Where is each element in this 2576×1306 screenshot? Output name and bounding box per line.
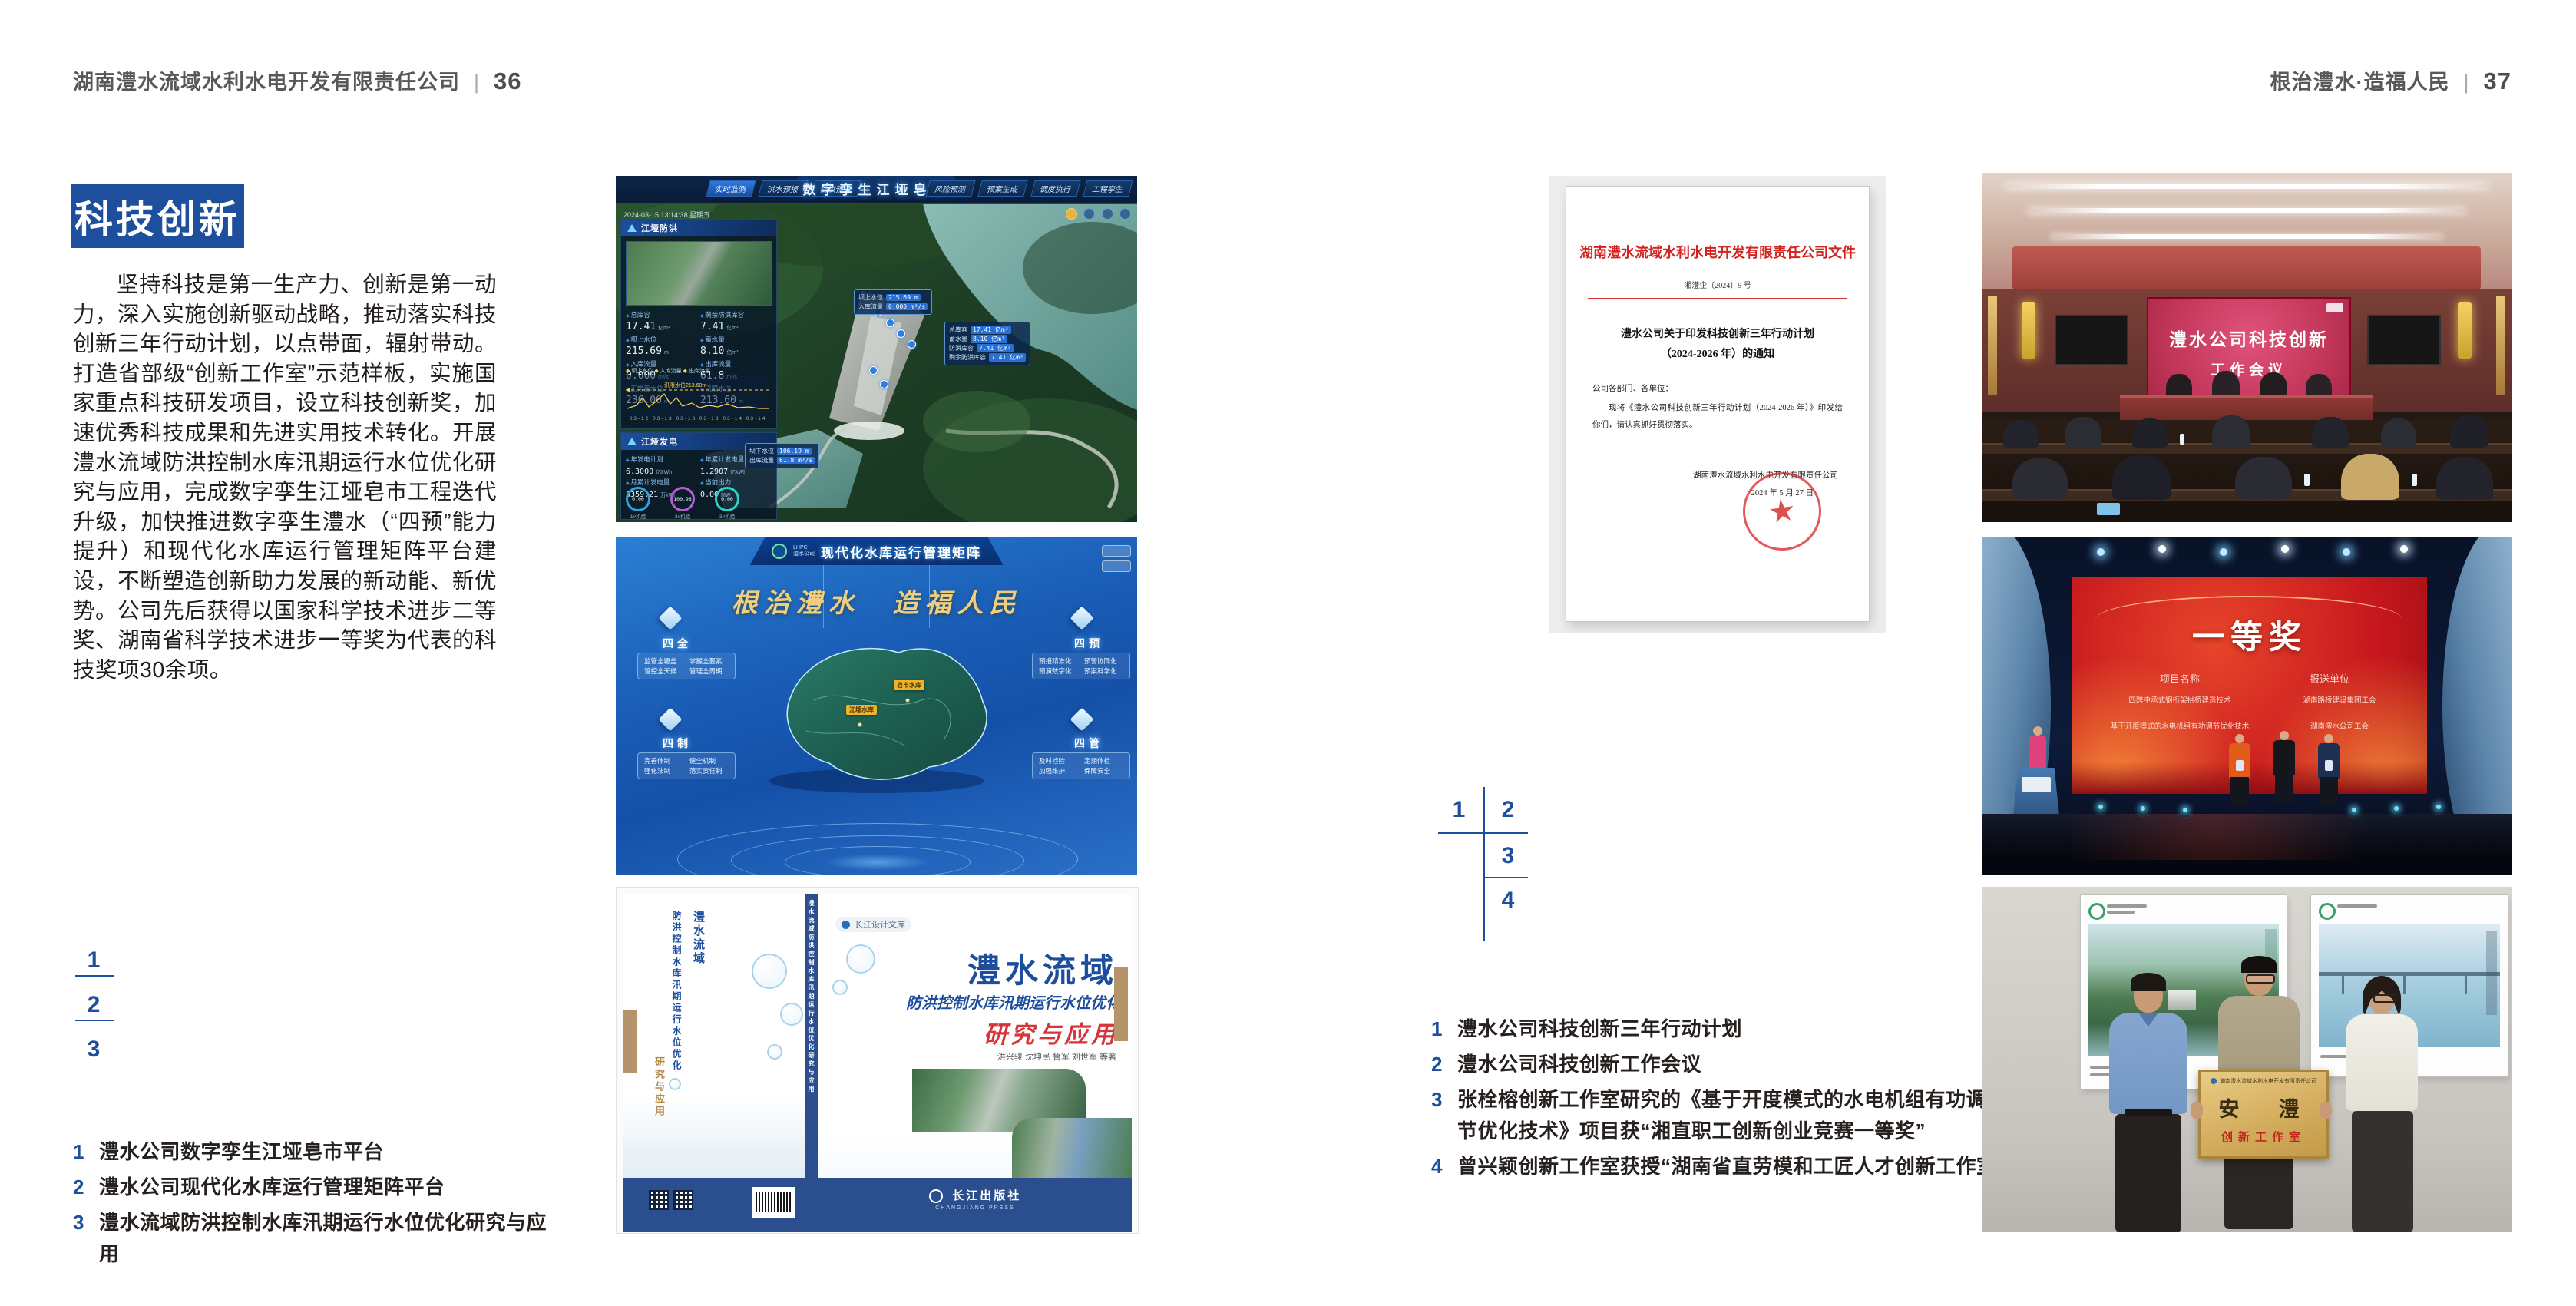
trophy	[2236, 760, 2244, 771]
spine-title: 澧水流域防洪控制水库汛期运行水位优化研究与应用	[807, 900, 815, 1153]
body-paragraph: 坚持科技是第一生产力、创新是第一动力，深入实施创新驱动战略，推动落实科技创新三年…	[73, 270, 497, 685]
unit-gauges: 0.001#机组 100.982#机组 0.003#机组	[626, 487, 739, 520]
attendee-silhouette	[2212, 415, 2250, 448]
tooltip-value: 0.000 m³/s	[886, 303, 928, 310]
publisher-name: 长江出版社	[952, 1190, 1021, 1202]
bubble-decor	[752, 954, 787, 989]
awardee-body	[2273, 740, 2295, 775]
quad-panel-siguan: 及时检险定期体检 加强维护保障安全	[1032, 752, 1130, 779]
tooltip-row: 总库容17.41 亿m³	[949, 326, 1026, 334]
message-icon[interactable]	[1083, 208, 1095, 220]
stat-cell: 坝上水位215.69m	[626, 335, 697, 358]
header-separator: |	[2450, 71, 2484, 94]
tooltip-label: 入库流量	[858, 303, 883, 311]
awardee-navy	[2318, 743, 2340, 814]
tab-flood-forecast[interactable]: 洪水预报	[759, 180, 809, 197]
panelist-silhouette	[2260, 372, 2287, 397]
poster-bridge-pier	[2465, 976, 2467, 994]
page-number-right: 37	[2484, 68, 2512, 94]
caption-text: 澧水公司现代化水库运行管理矩阵平台	[99, 1172, 445, 1203]
side-tv-screen	[2055, 315, 2128, 365]
quad-item: 完善体制	[644, 756, 683, 765]
publisher-en: CHANGJIANG PRESS	[818, 1205, 1132, 1211]
spotlight	[2343, 548, 2350, 556]
map-label-jiangya[interactable]: 江垭水库	[846, 705, 877, 715]
figure-marker-3: 3	[71, 1037, 117, 1063]
water-level-chart: 汛限水位213.60m	[626, 375, 770, 415]
left-captions: 1 澧水公司数字孪生江垭皂市平台 2 澧水公司现代化水库运行管理矩阵平台 3 澧…	[73, 1136, 564, 1274]
bubble-decor	[780, 1003, 803, 1026]
stage-light-fixture	[2392, 805, 2400, 815]
plaque-subtitle: 创新工作室	[2201, 1129, 2326, 1145]
poster-logo-icon	[2088, 903, 2105, 920]
spotlight	[2158, 545, 2166, 553]
figure-official-document: 湖南澧水流域水利水电开发有限责任公司文件 湘澧企〔2024〕9 号 澧水公司关于…	[1549, 176, 1886, 633]
gauge-label: 1#机组	[626, 512, 650, 520]
marker-divider	[75, 1020, 114, 1021]
tooltip-row: 蓄水量8.10 亿m³	[949, 335, 1026, 343]
logo-sub: 澧水公司	[793, 551, 815, 557]
quad-item: 管控全天候	[644, 666, 683, 676]
toolbar-icons	[1063, 208, 1131, 223]
quad-item: 掌握全要素	[689, 656, 729, 666]
document-title-line2: （2024-2026 年）的通知	[1566, 346, 1869, 361]
tooltip-value: 106.19 m	[777, 448, 812, 455]
water-bottle	[2180, 434, 2184, 445]
gauge-value: 100.98	[670, 487, 695, 511]
publisher-logo-icon	[929, 1189, 943, 1203]
quad-title-siquan: 四全	[646, 636, 708, 651]
company-name: 湖南澧水流域水利水电开发有限责任公司	[73, 71, 460, 94]
marker-hline	[1438, 832, 1528, 834]
document-page: 湖南澧水流域水利水电开发有限责任公司文件 湘澧企〔2024〕9 号 澧水公司关于…	[1566, 187, 1869, 621]
right-tab-group: 风险预测 预案生成 调度执行 工程孪生	[926, 180, 1133, 197]
quad-title-sizhi: 四制	[646, 736, 708, 751]
attendee-silhouette	[2450, 415, 2488, 448]
hand	[2191, 1102, 2203, 1119]
caption-text: 张栓榕创新工作室研究的《基于开度模式的水电机组有功调节优化技术》项目获“湘直职工…	[1457, 1084, 1995, 1147]
page-slogan: 根治澧水·造福人民	[2270, 71, 2450, 94]
stage-light-fixture	[2350, 806, 2358, 817]
side-tv-screen	[2367, 315, 2441, 365]
barcode	[756, 1192, 791, 1212]
panel-logo-icon	[627, 224, 637, 232]
chart-x-axis: 03-12 03-13 03-13 03-13 03-14 03-14	[626, 416, 770, 422]
award-unit-1: 湖南路桥建设集团工会	[2278, 694, 2401, 705]
spotlight	[2220, 548, 2227, 556]
company-logo-icon	[772, 544, 787, 559]
stat-cell: 年发电计划6.3000亿kWh	[626, 455, 697, 478]
quad-panel-siquan: 监管全覆盖掌握全要素 管控全天候管理全周期	[637, 653, 736, 679]
attendee-silhouette-yellow	[2341, 454, 2399, 500]
stat-label: 总库容	[626, 310, 697, 319]
marker-hline	[1483, 877, 1528, 878]
back-title-1: 澧水流域	[690, 911, 706, 1141]
person-white-tee	[2346, 1014, 2418, 1111]
person-right	[2336, 980, 2426, 1232]
awardee-head	[2280, 731, 2289, 740]
series-name: 长江设计文库	[855, 918, 905, 931]
awardee-head	[2324, 734, 2333, 743]
stat-value: 6.3000	[626, 468, 653, 476]
panelist-silhouette	[2306, 374, 2332, 397]
ring-glow	[823, 854, 931, 871]
right-captions: 1 澧水公司科技创新三年行动计划 2 澧水公司科技创新工作会议 3 张栓榕创新工…	[1431, 1013, 2015, 1186]
caption-text: 澧水公司科技创新三年行动计划	[1457, 1013, 1742, 1045]
dam-marker-icon[interactable]	[886, 319, 894, 327]
award-project-2: 基于开度模式的水电机组有功调节优化技术	[2088, 720, 2272, 731]
tooltip-value: 7.41 亿m³	[977, 344, 1014, 352]
gauge-unit-2: 100.982#机组	[670, 487, 695, 520]
stat-cell: 总库容17.41亿m³	[626, 310, 697, 333]
quad-item: 预案科学化	[1084, 666, 1123, 676]
slogan-calligraphy: 根治澧水 造福人民	[616, 582, 1137, 620]
award-col2-header: 报送单位	[2268, 671, 2391, 686]
quad-item: 预报精准化	[1039, 656, 1078, 666]
panelist-silhouette	[2212, 371, 2240, 397]
tooltip-value: 17.41 亿m³	[971, 326, 1011, 334]
stat-unit: 亿m³	[658, 326, 670, 331]
tooltip-row: 剩余防洪库容7.41 亿m³	[949, 353, 1026, 362]
watershed-map	[745, 623, 1009, 797]
tooltip-row: 坝上水位215.69 m	[858, 293, 928, 302]
awardee-legs	[2320, 777, 2338, 805]
figure-award-photo: 一等奖 项目名称 报送单位 四跨中承式钢桁架拱桥建造技术 湖南路桥建设集团工会 …	[1982, 537, 2512, 875]
series-logo-icon	[842, 921, 850, 929]
stage-light-fixture	[2097, 803, 2105, 814]
figure-marker-2: 2	[1491, 797, 1525, 823]
tab-plan-generation[interactable]: 预案生成	[977, 180, 1027, 197]
figure-marker-3: 3	[1491, 843, 1525, 869]
figure-plaque-photo: 湖南澧水流域水利水电开发有限责任公司 安 澧 创新工作室	[1982, 887, 2512, 1232]
legend-item: 入库流量	[660, 369, 682, 374]
poster-text-bar	[2337, 904, 2377, 908]
stat-unit: 亿kWh	[656, 470, 672, 475]
quad-icon	[658, 707, 682, 731]
figure-marker-1: 1	[1442, 797, 1476, 823]
attendee-silhouette	[2012, 458, 2068, 500]
screen-swoosh	[2095, 596, 2402, 643]
attendee-silhouette	[2235, 457, 2292, 500]
tab-dispatch-execute[interactable]: 调度执行	[1030, 180, 1080, 197]
quad-item: 保障安全	[1084, 766, 1123, 775]
host-body	[2029, 736, 2046, 771]
tooltip-label: 坝下水位	[749, 447, 774, 455]
tissue-box	[2097, 503, 2120, 515]
attendee-silhouette	[2132, 418, 2168, 448]
left-page-header: 湖南澧水流域水利水电开发有限责任公司|36	[73, 65, 522, 95]
person-polo-shirt	[2109, 1013, 2187, 1114]
tab-risk-forecast[interactable]: 风险预测	[925, 180, 975, 197]
caption-text: 澧水公司数字孪生江垭皂市平台	[99, 1136, 384, 1168]
plaque-org: 湖南澧水流域水利水电开发有限责任公司	[2220, 1077, 2316, 1085]
marker-divider	[75, 975, 114, 977]
attendee-silhouette	[2065, 417, 2101, 448]
stat-label: 当前出力	[700, 478, 772, 487]
quad-title-siyu: 四预	[1058, 636, 1119, 651]
tooltip-label: 蓄水量	[949, 335, 967, 343]
legend-item: 坝上水位	[631, 369, 653, 374]
section-title-badge: 科技创新	[71, 184, 244, 248]
stat-label: 年发电计划	[626, 455, 697, 464]
quad-item: 健全机制	[689, 756, 729, 765]
caption-number: 1	[1431, 1013, 1457, 1045]
dam-thumbnail	[626, 241, 772, 306]
dam-marker-icon[interactable]	[880, 380, 888, 388]
back-title-3: 研究与应用	[652, 1056, 666, 1156]
water-bottle	[2412, 474, 2417, 486]
awardee-legs	[2275, 774, 2293, 802]
stat-cell: 蓄水量8.10亿m³	[700, 335, 772, 358]
figure-marker-2: 2	[71, 992, 117, 1018]
stat-label: 剩余防洪库容	[700, 310, 772, 319]
quad-item: 预警协同化	[1084, 656, 1123, 666]
person-hair	[2241, 956, 2277, 973]
attendee-silhouette	[2003, 420, 2039, 448]
awardee-head	[2235, 734, 2244, 743]
attendee-silhouette	[2112, 455, 2171, 500]
front-title-2: 防洪控制水库汛期运行水位优化	[826, 990, 1121, 1013]
plaque-name: 安 澧	[2201, 1093, 2326, 1122]
quad-item: 强化法制	[644, 766, 683, 775]
person-left	[2101, 977, 2194, 1232]
bubble-decor	[669, 1078, 681, 1090]
quad-panel-siyu: 预报精准化预警协同化 预演数字化预案科学化	[1032, 653, 1130, 679]
barcode-box	[752, 1187, 795, 1218]
document-body: 现将《澧水公司科技创新三年行动计划（2024-2026 年）》印发给你们，请认真…	[1592, 400, 1843, 434]
front-bottom-band: 长江出版社 CHANGJIANG PRESS	[818, 1178, 1132, 1232]
caption-item: 1 澧水公司数字孪生江垭皂市平台	[73, 1136, 564, 1168]
stat-unit: 亿m³	[726, 350, 738, 355]
dam-marker-icon[interactable]	[908, 340, 916, 349]
quad-panel-sizhi: 完善体制健全机制 强化法制落实责任制	[637, 752, 736, 779]
poster-bridge	[2319, 972, 2500, 976]
figure-matrix-platform: LHPC澧水公司 现代化水库运行管理矩阵 根治澧水 造福人民 江垭水库 皂市水库…	[616, 537, 1137, 875]
bubble-decor	[767, 1044, 782, 1060]
corner-light-column	[2496, 296, 2505, 395]
tooltip-reservoir: 总库容17.41 亿m³ 蓄水量8.10 亿m³ 防洪库容7.41 亿m³ 剩余…	[944, 322, 1030, 365]
stat-cell: 剩余防洪库容7.41亿m³	[700, 310, 772, 333]
tooltip-row: 出库流量61.8 m³/s	[749, 456, 815, 465]
stat-value: 17.41	[626, 321, 656, 332]
awardee-legs	[2230, 777, 2249, 805]
tooltip-label: 剩余防洪库容	[949, 353, 986, 362]
attendee-silhouette	[2312, 417, 2349, 448]
caption-number: 3	[1431, 1084, 1457, 1116]
marker-vline	[1483, 787, 1485, 941]
logo-abbr: LHPC	[793, 545, 808, 551]
awardee-orange	[2229, 743, 2250, 814]
stage-light-fixture	[2435, 803, 2442, 814]
series-badge: 长江设计文库	[835, 917, 911, 932]
document-red-header: 湖南澧水流域水利水电开发有限责任公司文件	[1566, 242, 1869, 262]
authors: 洪兴骏 沈坤民 鲁军 刘世军 等著	[865, 1050, 1116, 1063]
caption-number: 2	[73, 1172, 99, 1203]
corner-light-column	[1988, 296, 1997, 395]
tooltip-label: 总库容	[949, 326, 967, 334]
wall-sconce-lamp	[2458, 302, 2472, 359]
right-page-header: 根治澧水·造福人民|37	[2270, 65, 2512, 95]
matrix-title: 现代化水库运行管理矩阵	[821, 542, 981, 561]
gauge-label: 2#机组	[670, 512, 695, 520]
gauge-value: 0.00	[715, 487, 739, 511]
seal-star-icon: ★	[1766, 492, 1798, 531]
poster-text-bar	[2107, 904, 2147, 908]
document-number: 湘澧企〔2024〕9 号	[1566, 279, 1869, 290]
back-accent-block	[623, 1010, 637, 1073]
ceiling-red-band	[2012, 246, 2481, 289]
tooltip-label: 防洪库容	[949, 344, 974, 352]
stat-unit: 亿kWh	[730, 470, 746, 475]
settings-icon[interactable]	[1119, 208, 1131, 220]
qr-code	[649, 1190, 669, 1210]
dam-marker-icon[interactable]	[869, 366, 878, 375]
figure-digital-twin-platform: 防洪兴利调度 实时监测 洪水预报 防洪预演 数字孪生江垭皂市 风险预测 预案生成…	[616, 176, 1137, 522]
figure-marker-1: 1	[71, 947, 117, 974]
caption-number: 1	[73, 1136, 99, 1168]
page-number-left: 36	[494, 68, 521, 94]
glasses-icon	[2246, 974, 2275, 984]
logo-text: LHPC澧水公司	[793, 545, 815, 557]
caption-number: 3	[73, 1207, 99, 1238]
panel-chip[interactable]	[1102, 560, 1131, 572]
document-title-line1: 澧水公司关于印发科技创新三年行动计划	[1566, 326, 1869, 341]
tooltip-row: 坝下水位106.19 m	[749, 447, 815, 455]
tooltip-value: 61.8 m³/s	[777, 457, 815, 464]
gauge-unit-1: 0.001#机组	[626, 487, 650, 520]
quad-item: 管理全周期	[689, 666, 729, 676]
caption-item: 2 澧水公司现代化水库运行管理矩阵平台	[73, 1172, 564, 1203]
legend-item: 出库流量	[689, 369, 710, 374]
screen-logo	[2326, 303, 2343, 312]
poster-text-bar	[2107, 911, 2135, 914]
map-label-zaoshi[interactable]: 皂市水库	[894, 680, 924, 690]
floor-reflection	[2072, 814, 2427, 860]
back-title-2: 防洪控制水库汛期运行水位优化	[670, 911, 683, 1156]
award-unit-2: 湖南澧水公司工会	[2278, 720, 2401, 731]
tooltip-label: 出库流量	[749, 456, 774, 465]
figure-meeting-photo: 澧水公司科技创新 工作会议	[1982, 173, 2512, 522]
panelist-silhouette	[2166, 374, 2192, 397]
screen-title-line1: 澧水公司科技创新	[2148, 325, 2349, 351]
qr-code	[673, 1190, 693, 1210]
front-accent-block	[1114, 967, 1128, 1041]
light-strip	[2005, 184, 2488, 189]
document-salutation: 公司各部门、各单位：	[1592, 382, 1843, 394]
figure-book-cover: 澧水流域 防洪控制水库汛期运行水位优化 研究与应用 澧水流域防洪控制水库汛期运行…	[616, 887, 1139, 1234]
tab-realtime-monitor[interactable]: 实时监测	[706, 180, 756, 197]
attendee-silhouette	[2381, 418, 2416, 448]
water-bottle	[2304, 474, 2310, 486]
tooltip-upstream: 坝上水位215.69 m 入库流量0.000 m³/s	[854, 289, 932, 315]
awardee-suit	[2273, 740, 2295, 814]
caption-item: 3 张栓榕创新工作室研究的《基于开度模式的水电机组有功调节优化技术》项目获“湘直…	[1431, 1084, 2015, 1147]
person-belt	[2125, 1109, 2172, 1116]
quad-item: 预演数字化	[1039, 666, 1078, 676]
stat-label: 月累计发电量	[626, 478, 697, 487]
stat-unit: 亿m³	[726, 326, 738, 331]
matrix-header: LHPC澧水公司 现代化水库运行管理矩阵	[750, 537, 1004, 565]
person-pants	[2352, 1111, 2413, 1232]
spotlight	[2281, 545, 2289, 553]
quad-item: 及时检险	[1039, 756, 1078, 765]
light-strip	[2028, 208, 2465, 213]
spotlight	[2400, 545, 2408, 553]
tooltip-row: 入库流量0.000 m³/s	[858, 303, 928, 311]
chart-annotation: 汛限水位213.60m	[664, 382, 706, 388]
locate-icon[interactable]	[1102, 208, 1113, 220]
podium-sign	[2022, 777, 2051, 792]
tab-engineering-twin[interactable]: 工程孪生	[1083, 180, 1133, 197]
caption-item: 2 澧水公司科技创新工作会议	[1431, 1049, 2015, 1080]
plaque-logo-icon	[2211, 1078, 2217, 1084]
stat-unit: m	[664, 350, 669, 355]
stage-light-fixture	[2181, 806, 2189, 817]
caption-item: 4 曾兴颖创新工作室获授“湖南省直劳模和工匠人才创新工作室”	[1431, 1151, 2015, 1182]
host-head	[2033, 726, 2042, 736]
caption-text: 澧水流域防洪控制水库汛期运行水位优化研究与应用	[99, 1207, 564, 1270]
back-bottom-band	[623, 1178, 805, 1232]
panel-chip[interactable]	[1102, 545, 1131, 557]
gauge-unit-3: 0.003#机组	[715, 487, 739, 520]
tooltip-value: 7.41 亿m³	[989, 353, 1026, 362]
flood-panel-title: 江垭防洪	[641, 222, 678, 234]
poster-logo-icon	[2319, 903, 2336, 920]
innovation-plaque: 湖南澧水流域水利水电开发有限责任公司 安 澧 创新工作室	[2198, 1070, 2329, 1159]
polo-collar	[2138, 1013, 2158, 1027]
caption-text: 曾兴颖创新工作室获授“湖南省直劳模和工匠人才创新工作室”	[1457, 1151, 2007, 1182]
figure-marker-4: 4	[1491, 888, 1525, 914]
stat-label: 坝上水位	[626, 335, 697, 344]
stat-value: 215.69	[626, 346, 662, 357]
quad-item: 加强维护	[1039, 766, 1078, 775]
wall-sconce-lamp	[2022, 302, 2035, 359]
tooltip-value: 8.10 亿m³	[971, 335, 1007, 343]
dam-photo-2	[1012, 1118, 1132, 1182]
panel-logo-icon	[627, 438, 637, 445]
stat-value: 1.2907	[700, 468, 728, 476]
front-title-3: 研究与应用	[865, 1015, 1118, 1050]
magazine-spread: 湖南澧水流域水利水电开发有限责任公司|36 科技创新 坚持科技是第一生产力、创新…	[0, 0, 2576, 1306]
stat-label: 蓄水量	[700, 335, 772, 344]
tooltip-value: 215.69 m	[886, 294, 921, 301]
header-separator: |	[460, 71, 494, 94]
tooltip-label: 坝上水位	[858, 293, 883, 302]
stage-light-fixture	[2139, 805, 2147, 815]
glasses-icon	[2373, 994, 2396, 1003]
power-panel-title: 江垭发电	[641, 435, 678, 448]
flood-panel-header: 江垭防洪	[621, 220, 776, 236]
person-hair	[2131, 973, 2166, 991]
quad-icon	[1070, 707, 1093, 731]
stat-value: 7.41	[700, 321, 724, 332]
person-pants	[2115, 1114, 2181, 1232]
publisher-block: 长江出版社 CHANGJIANG PRESS	[818, 1187, 1132, 1211]
stat-value: 8.10	[700, 346, 724, 357]
tooltip-row: 防洪库容7.41 亿m³	[949, 344, 1026, 352]
dam-marker-icon[interactable]	[897, 329, 905, 338]
front-title-1: 澧水流域	[865, 944, 1118, 992]
hand	[2320, 1102, 2332, 1119]
quad-item: 监管全覆盖	[644, 656, 683, 666]
avatar-icon[interactable]	[1066, 208, 1077, 220]
flood-panel: 江垭防洪 总库容17.41亿m³ 剩余防洪库容7.41亿m³ 坝上水位215.6…	[620, 219, 777, 429]
gauge-label: 3#机组	[715, 512, 739, 520]
document-red-rule	[1588, 298, 1848, 299]
caption-number: 2	[1431, 1049, 1457, 1080]
poster-vertical-text-bar	[2486, 931, 2497, 1015]
caption-text: 澧水公司科技创新工作会议	[1457, 1049, 1701, 1080]
